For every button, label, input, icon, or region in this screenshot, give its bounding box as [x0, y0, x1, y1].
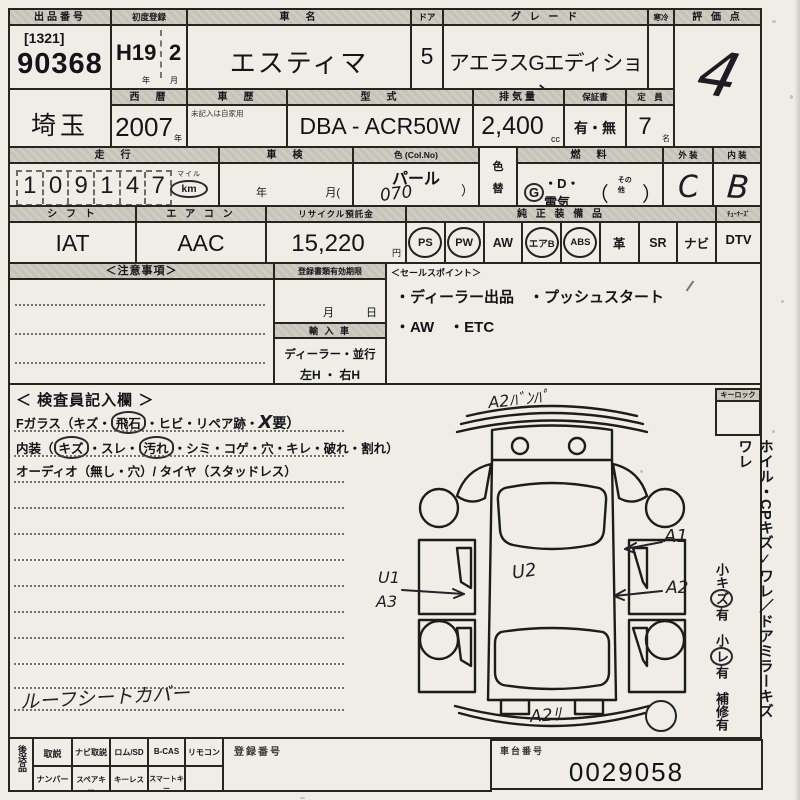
fuel-cell: 燃 料 G・D・電気（その他）	[516, 146, 664, 207]
chassis-number-cell: 車台番号 0029058	[490, 739, 763, 790]
equip-pw: PW	[444, 223, 483, 262]
history-header: 車 歴	[188, 90, 286, 106]
digit: 0	[44, 172, 70, 204]
grade-header: グ レ ー ド	[444, 10, 647, 26]
sales-point-line: ・ディーラー出品 ・プッシュスタート	[395, 286, 664, 307]
equip-aw: AW	[483, 223, 522, 262]
lot-number: 90368	[10, 48, 110, 81]
dtv-header: ﾁｭｰﾅｰｽﾞ	[717, 207, 760, 223]
first-registration-era: H19	[116, 40, 156, 66]
cautions-cell: ＜注意事項＞	[8, 262, 275, 385]
score-header: 評 価 点	[675, 10, 760, 26]
door-cell: ドア 5	[410, 8, 444, 90]
exterior-grade-cell: 外 装 C	[662, 146, 714, 207]
km-badge: マイル km	[170, 169, 208, 198]
shaken-month-label: 月(	[325, 184, 340, 200]
keyless-cell: キーレス	[109, 765, 149, 792]
navi-manual-label: ナビ取説	[73, 747, 109, 758]
navi-manual-cell: ナビ取説	[71, 737, 111, 767]
warranty-header: 保証書	[565, 90, 625, 106]
chassis-number-header: 車台番号	[500, 744, 544, 757]
sales-points-header: ＜セールスポイント＞	[391, 266, 481, 279]
digit: 4	[121, 172, 147, 204]
history-note: 未記入は自家用	[191, 108, 244, 119]
color-change-cell: 色 替	[478, 146, 518, 207]
capacity-value: 7	[627, 113, 663, 141]
unit-yen: 円	[392, 246, 401, 259]
leather-label: 革	[613, 233, 626, 252]
shaken-header: 車 検	[220, 148, 352, 164]
unit-cc: cc	[551, 134, 560, 144]
abs-circled: ABS	[563, 227, 597, 258]
handle-side: 左H ・ 右H	[275, 366, 385, 383]
auction-sheet: 出品番号 [1321] 90368 初度登録 H19 2 年 月 車 名 エステ…	[0, 0, 800, 800]
circled-zu: ズ	[710, 589, 733, 608]
exterior-grade: C	[676, 169, 700, 206]
damage-label-u1: U1	[378, 568, 400, 587]
equip-ps: PS	[407, 223, 444, 262]
circled-re: レ	[710, 647, 733, 666]
divider	[160, 30, 162, 78]
spare-key-cell: スペアキー	[71, 765, 111, 792]
scanner-edge-shadow	[794, 0, 800, 800]
first-registration-month: 2	[169, 40, 181, 66]
plate-label: ナンバー	[34, 774, 71, 785]
shaken-cell: 車 検 年 月(	[218, 146, 354, 207]
score-value: 4	[690, 36, 748, 113]
keylock-header: キーロック	[717, 390, 759, 402]
displacement-cell: 排気量 2,400 cc	[472, 88, 565, 148]
unit-persons: 名	[662, 133, 670, 144]
km-circled: km	[170, 180, 208, 198]
recycle-fee: 15,220	[267, 230, 389, 258]
car-diagram	[10, 385, 764, 741]
docs-month-label: 月	[323, 304, 334, 320]
equipment-cell: 純 正 装 備 品 PS PW AW エアB ABS 革 SR ナビ	[405, 205, 717, 264]
stray-pen-mark	[686, 281, 695, 292]
color-cell: 色 (Col.No) パール 070 ）	[352, 146, 480, 207]
color-change-label-bottom: 替	[480, 180, 516, 196]
import-type: ディーラー・並行	[275, 346, 385, 362]
model-code: DBA - ACR50W	[288, 113, 472, 140]
registration-number-header: 登録番号	[234, 743, 282, 758]
navi-label: ナビ	[684, 233, 709, 252]
displacement-value: 2,400	[474, 112, 551, 141]
fuel-header: 燃 料	[518, 148, 662, 164]
chassis-number: 0029058	[492, 757, 761, 788]
shift-value: IAT	[10, 230, 135, 257]
year-header: 西 暦	[112, 90, 186, 106]
side-note-small-damage: 小キズ有 小レ有 補修有	[710, 563, 733, 733]
dtv-cell: ﾁｭｰﾅｰｽﾞ DTV	[715, 205, 762, 264]
cold-region-header: 寒冷	[649, 10, 673, 26]
paren-close: ）	[642, 178, 662, 207]
capacity-header: 定 員	[627, 90, 673, 106]
paren-open: （	[589, 178, 609, 207]
blank-line	[15, 362, 265, 364]
year-value: 2007	[112, 112, 176, 143]
lot-number-cell: 出品番号 [1321] 90368	[8, 8, 112, 90]
warranty-cell: 保証書 有・無	[563, 88, 627, 148]
scan-speck	[300, 797, 305, 799]
shift-header: シ フ ト	[10, 207, 135, 223]
exterior-grade-header: 外 装	[664, 148, 712, 164]
remote-cell: リモコン	[184, 737, 224, 767]
unit-year: 年	[174, 133, 182, 144]
first-registration-header: 初度登録	[112, 10, 186, 26]
equip-airbag: エアB	[521, 223, 560, 262]
displacement-header: 排気量	[474, 90, 563, 106]
recycle-fee-header: リサイクル預託金	[267, 207, 405, 223]
shift-cell: シ フ ト IAT	[8, 205, 137, 264]
blank-line	[15, 333, 265, 335]
manual-label: 取説	[34, 747, 71, 760]
rom-sd-cell: ロム/SD	[109, 737, 149, 767]
prefecture-cell: 埼玉	[8, 88, 112, 148]
mileage-cell: 走 行 1 0 9 1 4 7 マイル km	[8, 146, 220, 207]
scan-speck	[772, 430, 775, 433]
digit: 1	[95, 172, 121, 204]
interior-grade: B	[726, 167, 751, 206]
side-note-text: ホイル・CPキズ	[757, 439, 773, 550]
interior-grade-cell: 内 装 B	[712, 146, 762, 207]
mile-label: マイル	[170, 169, 208, 179]
fuel-other: その他	[618, 175, 633, 195]
lot-bracket: [1321]	[24, 30, 64, 46]
scan-speck	[781, 300, 784, 303]
scan-speck	[790, 95, 793, 99]
lot-number-header: 出品番号	[10, 10, 110, 26]
damage-label-a1: A1	[664, 526, 688, 547]
history-cell: 車 歴 未記入は自家用	[186, 88, 288, 148]
smart-key-cell: スマートキー	[147, 765, 186, 792]
sunroof-label: SR	[649, 236, 666, 250]
mileage-header: 走 行	[10, 148, 218, 164]
model-code-header: 型 式	[288, 90, 472, 106]
equip-navi: ナビ	[676, 223, 715, 262]
pw-circled: PW	[447, 227, 481, 258]
docs-day-label: 日	[366, 304, 377, 320]
inspector-area: ＜ 検査員記入欄 ＞ Fガラス（キズ・飛石・ヒビ・リペア跡・X要） 内装（キズ・…	[8, 383, 762, 739]
documents-header: 登録書類有効期限	[275, 264, 385, 280]
interior-grade-header: 内 装	[714, 148, 760, 164]
bcas-cell: B-CAS	[147, 737, 186, 767]
scanned-auction-sheet: { "r1": { "lot_label": "出品番号", "lot_brac…	[0, 0, 800, 800]
import-header: 輸 入 車	[275, 324, 385, 339]
send-later-cell: 後送品	[8, 737, 34, 792]
equipment-header: 純 正 装 備 品	[407, 207, 715, 223]
smart-key-label: スマートキー	[149, 774, 184, 794]
manual-cell: 取説	[32, 737, 73, 767]
send-later-label: 後送品	[16, 745, 29, 772]
door-count: 5	[412, 43, 442, 70]
color-header: 色 (Col.No)	[354, 148, 478, 164]
spare-key-label: スペアキー	[73, 774, 109, 796]
equipment-grid: PS PW AW エアB ABS 革 SR ナビ	[407, 223, 715, 262]
equip-sr: SR	[638, 223, 677, 262]
handwritten-check: ✓	[756, 550, 774, 569]
side-note-text: 有 補修有	[714, 666, 729, 731]
airbag-circled: エアB	[525, 227, 559, 258]
side-note-text: 有 小	[714, 608, 729, 647]
plate-cell: ナンバー	[32, 765, 73, 792]
score-cell: 評 価 点 4	[673, 8, 762, 148]
scan-speck	[640, 470, 643, 473]
equip-abs: ABS	[560, 223, 599, 262]
bcas-label: B-CAS	[149, 747, 184, 756]
color-value: パール	[354, 165, 478, 189]
cautions-header: ＜注意事項＞	[10, 264, 273, 280]
prefecture: 埼玉	[10, 106, 110, 142]
shaken-year-label: 年	[256, 184, 267, 200]
digit: 7	[146, 172, 170, 204]
year-cell: 西 暦 2007 年	[110, 88, 188, 148]
unit-month: 月	[170, 75, 178, 86]
remote-label: リモコン	[186, 747, 222, 758]
fuel-g-circled: G	[524, 183, 544, 202]
aircon-cell: エ ア コ ン AAC	[135, 205, 267, 264]
side-note-wheel-mirror: ホイル・CPキズ✓ワレ／ドアミラーキズ ワレ	[734, 439, 776, 735]
damage-label-rear: A2ﾘ	[529, 700, 562, 727]
unit-year: 年	[142, 75, 150, 86]
first-registration-cell: 初度登録 H19 2 年 月	[110, 8, 188, 90]
cold-region-cell: 寒冷	[647, 8, 675, 90]
rom-sd-label: ロム/SD	[111, 747, 147, 758]
door-header: ドア	[412, 10, 442, 26]
mileage-digits: 1 0 9 1 4 7	[16, 170, 172, 206]
digit: 9	[69, 172, 95, 204]
aircon-value: AAC	[137, 230, 265, 257]
side-note-text: 小キ	[714, 563, 729, 589]
color-number: 070	[379, 182, 414, 206]
recycle-fee-cell: リサイクル預託金 15,220 円	[265, 205, 407, 264]
stamp-circle	[646, 701, 676, 731]
blank-line	[15, 304, 265, 306]
keylock-box: キーロック	[715, 388, 761, 436]
damage-label-a3: A3	[376, 592, 397, 611]
keyless-label: キーレス	[111, 774, 147, 785]
scan-speck	[772, 20, 776, 23]
dtv-label: DTV	[717, 232, 760, 247]
grade-cell: グ レ ー ド アエラスGエディション	[442, 8, 649, 90]
digit: 1	[18, 172, 44, 204]
car-name: エスティマ	[188, 43, 410, 80]
aircon-header: エ ア コ ン	[137, 207, 265, 223]
empty-cell	[184, 765, 224, 792]
documents-cell: 登録書類有効期限 月 日 輸 入 車 ディーラー・並行 左H ・ 右H	[273, 262, 387, 385]
warranty-value: 有・無	[565, 118, 625, 138]
damage-label-a2: A2	[666, 578, 688, 598]
sales-points-cell: ＜セールスポイント＞ ・ディーラー出品 ・プッシュスタート ・AW ・ETC	[385, 262, 762, 385]
car-name-cell: 車 名 エスティマ	[186, 8, 412, 90]
aw-label: AW	[493, 236, 513, 250]
damage-label-u2: U2	[511, 559, 538, 583]
paren: ）	[461, 180, 474, 199]
registration-number-cell: 登録番号	[222, 737, 492, 792]
car-name-header: 車 名	[188, 10, 410, 26]
capacity-cell: 定 員 7 名	[625, 88, 675, 148]
equip-leather: 革	[599, 223, 638, 262]
color-change-label-top: 色	[480, 158, 516, 174]
ps-circled: PS	[408, 227, 442, 258]
sales-point-line: ・AW ・ETC	[395, 316, 494, 337]
model-code-cell: 型 式 DBA - ACR50W	[286, 88, 474, 148]
